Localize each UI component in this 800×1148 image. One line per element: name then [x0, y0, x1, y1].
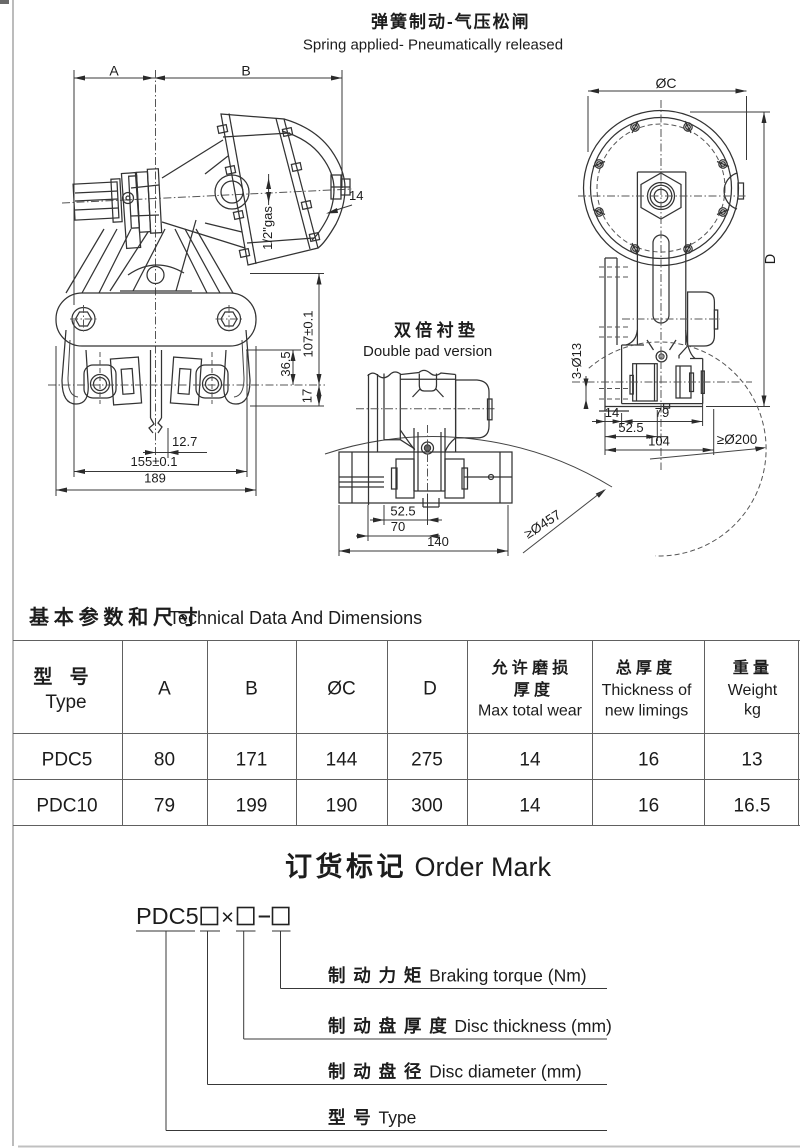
svg-text:3-Ø13: 3-Ø13 [569, 343, 584, 379]
svg-text:155±0.1: 155±0.1 [131, 454, 178, 469]
svg-text:D: D [763, 254, 779, 264]
svg-text:允许磨损: 允许磨损 [491, 658, 573, 677]
svg-text:D: D [423, 679, 437, 700]
svg-text:Max total wear: Max total wear [478, 703, 583, 720]
svg-text:36.5: 36.5 [278, 351, 293, 376]
svg-text:14: 14 [519, 750, 541, 771]
svg-text:kg: kg [744, 702, 761, 719]
svg-text:制动盘厚度 Disc thickness (mm): 制动盘厚度 Disc thickness (mm) [328, 1016, 612, 1036]
svg-text:new limings: new limings [605, 703, 689, 720]
svg-text:制动力矩 Braking torque (Nm): 制动力矩 Braking torque (Nm) [328, 966, 587, 986]
svg-text:1/2"gas: 1/2"gas [260, 206, 275, 250]
svg-text:B: B [241, 63, 250, 79]
svg-text:12.7: 12.7 [172, 434, 197, 449]
svg-text:79: 79 [154, 796, 175, 817]
svg-text:≥Ø200: ≥Ø200 [717, 432, 757, 447]
svg-text:300: 300 [411, 796, 443, 817]
svg-text:Spring applied- Pneumatically: Spring applied- Pneumatically released [303, 37, 563, 54]
svg-text:订货标记 Order Mark: 订货标记 Order Mark [285, 851, 552, 882]
svg-text:52.5: 52.5 [390, 504, 415, 519]
svg-text:双倍衬垫: 双倍衬垫 [394, 320, 479, 340]
svg-text:弹簧制动-气压松闸: 弹簧制动-气压松闸 [371, 12, 531, 32]
svg-text:Double pad version: Double pad version [363, 343, 492, 360]
svg-text:171: 171 [236, 750, 268, 771]
svg-text:×: × [221, 905, 234, 930]
svg-text:52.5: 52.5 [618, 420, 643, 435]
svg-text:ØC: ØC [327, 679, 356, 700]
svg-text:Weight: Weight [728, 682, 778, 699]
svg-text:型 号: 型 号 [33, 665, 94, 688]
svg-text:重量: 重量 [733, 658, 773, 677]
svg-text:16: 16 [638, 750, 659, 771]
svg-text:A: A [158, 679, 171, 700]
svg-text:199: 199 [236, 796, 268, 817]
svg-text:14: 14 [349, 188, 363, 203]
svg-text:70: 70 [391, 519, 405, 534]
svg-text:PDC5: PDC5 [42, 750, 93, 771]
svg-text:型号 Type: 型号 Type [328, 1108, 416, 1128]
svg-text:Technical Data And Dimensions: Technical Data And Dimensions [169, 608, 422, 628]
svg-text:140: 140 [427, 534, 449, 549]
svg-text:14: 14 [605, 405, 619, 420]
svg-text:B: B [245, 679, 258, 700]
svg-text:厚度: 厚度 [514, 680, 554, 699]
svg-text:189: 189 [144, 471, 166, 486]
svg-text:275: 275 [411, 750, 443, 771]
svg-text:总厚度: 总厚度 [616, 658, 677, 677]
svg-text:190: 190 [326, 796, 358, 817]
svg-text:制动盘径 Disc diameter (mm): 制动盘径 Disc diameter (mm) [328, 1062, 582, 1082]
svg-text:80: 80 [154, 750, 175, 771]
svg-text:17: 17 [300, 389, 315, 403]
svg-text:Type: Type [45, 692, 86, 713]
svg-text:PDC5: PDC5 [136, 903, 199, 929]
svg-text:14: 14 [519, 796, 541, 817]
svg-text:107±0.1: 107±0.1 [301, 311, 316, 358]
svg-text:16.5: 16.5 [734, 796, 771, 817]
svg-text:104: 104 [648, 434, 670, 449]
svg-text:ØC: ØC [656, 75, 677, 91]
svg-text:A: A [109, 63, 119, 79]
svg-text:Thickness of: Thickness of [602, 682, 692, 699]
svg-text:144: 144 [326, 750, 358, 771]
svg-text:13: 13 [741, 750, 762, 771]
svg-text:PDC10: PDC10 [36, 796, 97, 817]
svg-text:16: 16 [638, 796, 659, 817]
